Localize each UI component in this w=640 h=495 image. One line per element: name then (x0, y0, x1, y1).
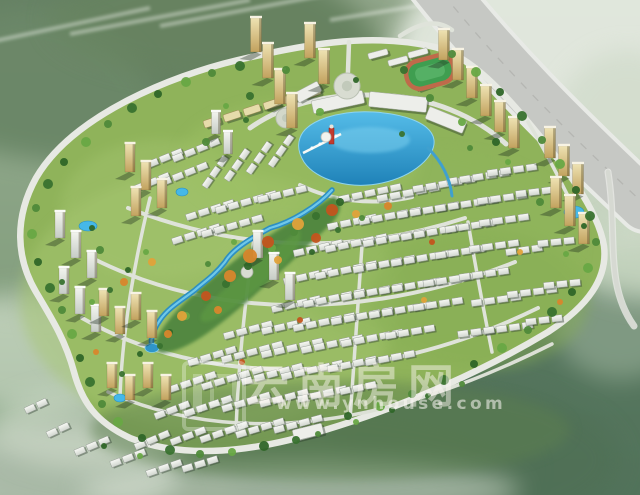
masterplan-scene (0, 0, 640, 495)
aerial-rendering-screenshot: 云南房网 www.ynhouse.com (0, 0, 640, 495)
